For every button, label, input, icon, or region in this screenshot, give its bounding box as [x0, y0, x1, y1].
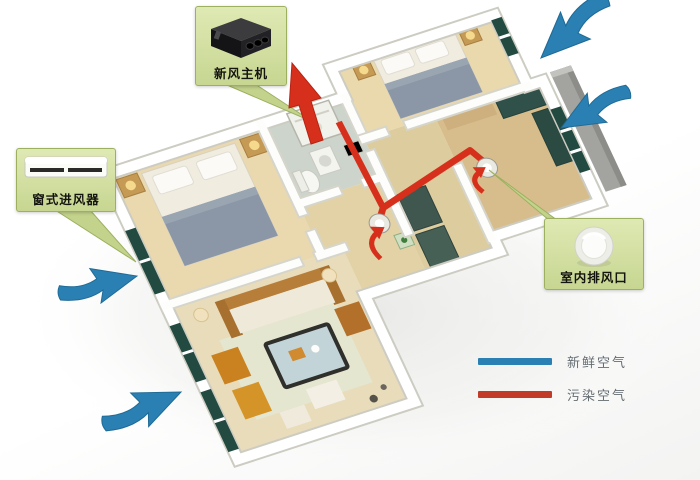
- callout-label: 室内排风口: [560, 272, 628, 285]
- legend-item-polluted-air: 污染空气: [478, 385, 627, 404]
- window-air-inlet-image: [23, 155, 109, 181]
- fresh-air-color-bar: [478, 358, 552, 365]
- polluted-air-color-bar: [478, 391, 552, 398]
- callout-window-inlet: 窗式进风器: [16, 148, 116, 212]
- callout-fresh-air-unit: 新风主机: [195, 6, 287, 86]
- legend-item-fresh-air: 新鲜空气: [478, 352, 627, 371]
- round-ceiling-vent-image: [571, 225, 617, 269]
- fresh-air-arrow-icon: [527, 0, 620, 72]
- fresh-air-main-unit-image: [203, 13, 279, 59]
- callout-label: 新风主机: [214, 68, 268, 81]
- legend-label: 污染空气: [567, 385, 627, 404]
- callout-label: 窗式进风器: [32, 194, 100, 207]
- ventilation-diagram: 新风主机 窗式进风器 室内排风口 新鲜空气 污染空气: [0, 0, 700, 480]
- callout-indoor-exhaust: 室内排风口: [544, 218, 644, 290]
- legend-label: 新鲜空气: [567, 352, 627, 371]
- legend: 新鲜空气 污染空气: [478, 352, 627, 418]
